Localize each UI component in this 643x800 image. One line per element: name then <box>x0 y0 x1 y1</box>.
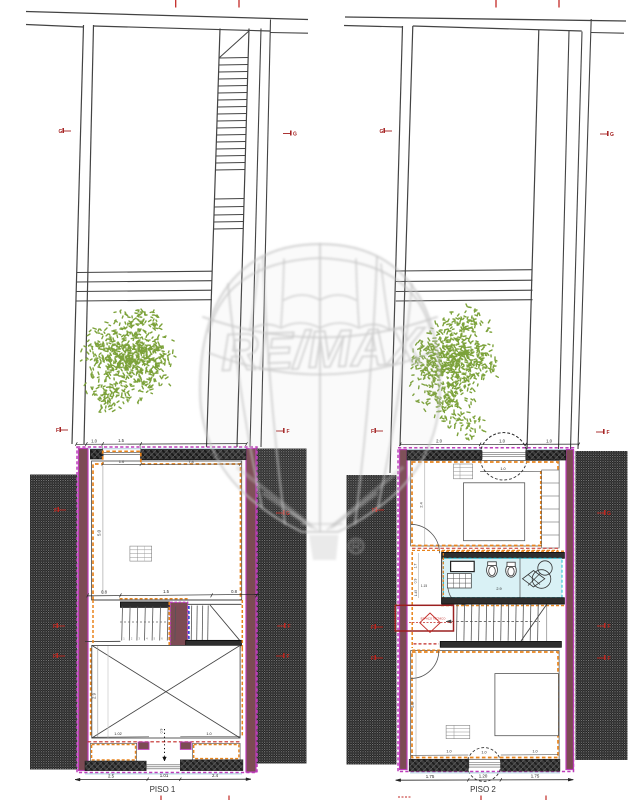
svg-text:3: 3 <box>138 637 140 641</box>
svg-text:F: F <box>371 625 374 631</box>
svg-text:1.02: 1.02 <box>114 732 121 736</box>
svg-text:ESPAÇO TÉCNICO: ESPAÇO TÉCNICO <box>421 615 447 620</box>
svg-text:F: F <box>371 656 374 662</box>
svg-text:7.4: 7.4 <box>188 459 194 464</box>
svg-text:PISO 2: PISO 2 <box>470 785 496 794</box>
svg-text:F: F <box>56 428 59 434</box>
svg-text:1.0: 1.0 <box>446 750 451 754</box>
svg-text:F: F <box>286 654 289 660</box>
svg-text:1: 1 <box>123 637 125 641</box>
svg-text:F: F <box>607 624 610 630</box>
svg-text:G: G <box>610 132 614 138</box>
svg-text:1.75: 1.75 <box>531 773 540 778</box>
svg-text:4: 4 <box>146 637 148 641</box>
svg-text:5.0: 5.0 <box>97 529 102 536</box>
svg-text:2.5: 2.5 <box>108 773 115 778</box>
svg-text:1.20: 1.20 <box>479 774 488 779</box>
svg-text:1.0: 1.0 <box>206 732 211 736</box>
svg-text:F: F <box>53 624 56 630</box>
svg-text:F: F <box>287 624 290 630</box>
svg-text:G: G <box>607 511 611 517</box>
svg-text:F: F <box>53 654 56 660</box>
svg-text:1.01: 1.01 <box>160 773 169 778</box>
svg-text:1.0: 1.0 <box>91 438 97 443</box>
svg-text:0.9: 0.9 <box>414 579 418 584</box>
svg-text:1.75: 1.75 <box>426 774 435 779</box>
svg-text:1.0: 1.0 <box>532 749 537 753</box>
svg-text:2.5: 2.5 <box>410 701 415 707</box>
svg-text:1.5: 1.5 <box>163 589 169 594</box>
svg-text:1.0: 1.0 <box>499 438 505 443</box>
svg-text:0.8: 0.8 <box>101 590 107 595</box>
svg-text:2.4: 2.4 <box>419 501 424 507</box>
svg-text:2.4: 2.4 <box>212 773 219 778</box>
svg-text:1.7: 1.7 <box>414 564 418 569</box>
svg-text:PISO 1: PISO 1 <box>150 785 176 794</box>
svg-text:1.15: 1.15 <box>421 584 427 588</box>
svg-text:1.0: 1.0 <box>119 459 125 464</box>
svg-text:2.9: 2.9 <box>496 587 501 591</box>
svg-text:RE/MAX: RE/MAX <box>220 317 427 382</box>
svg-text:6: 6 <box>161 637 163 641</box>
svg-text:F: F <box>54 508 57 514</box>
svg-text:G: G <box>293 132 297 138</box>
svg-text:F: F <box>606 430 609 436</box>
svg-text:F: F <box>607 656 610 662</box>
svg-text:1.5: 1.5 <box>118 438 124 443</box>
svg-text:2.0: 2.0 <box>436 439 442 444</box>
svg-text:2.9: 2.9 <box>92 692 97 699</box>
svg-text:G: G <box>380 129 384 135</box>
svg-text:2: 2 <box>131 637 133 641</box>
svg-text:5: 5 <box>154 637 156 641</box>
svg-text:G: G <box>59 129 63 135</box>
svg-text:1.45: 1.45 <box>414 590 418 596</box>
svg-text:1.0: 1.0 <box>481 751 486 755</box>
svg-text:0.8: 0.8 <box>231 589 237 594</box>
svg-text:0.9: 0.9 <box>160 729 164 734</box>
svg-text:1.0: 1.0 <box>500 467 505 471</box>
svg-text:1.0: 1.0 <box>546 438 552 443</box>
